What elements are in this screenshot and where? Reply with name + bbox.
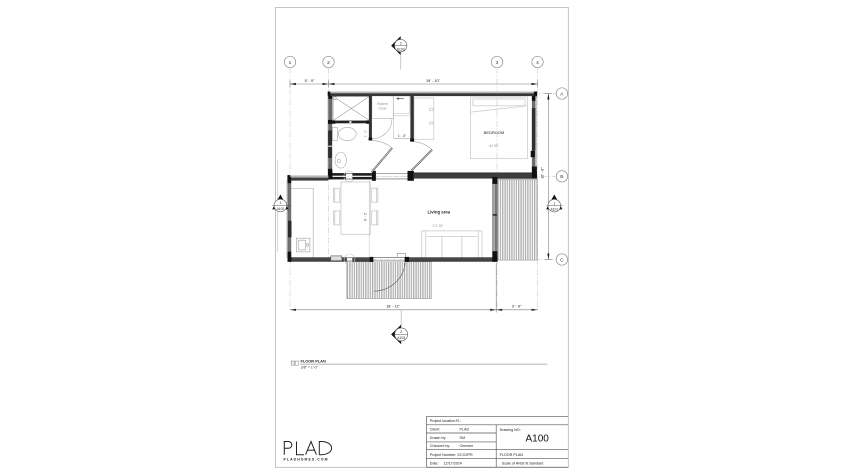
svg-text:1: 1 bbox=[279, 201, 281, 205]
svg-text:Scale of ANSI B standard: Scale of ANSI B standard bbox=[502, 462, 544, 466]
svg-text:19' - 10": 19' - 10" bbox=[426, 79, 441, 83]
svg-text:A102: A102 bbox=[277, 207, 285, 211]
svg-text:Dryer: Dryer bbox=[378, 106, 387, 110]
svg-text:84 SF: 84 SF bbox=[489, 144, 498, 148]
svg-text:BEDROOM: BEDROOM bbox=[484, 130, 505, 135]
svg-text:2' - 6": 2' - 6" bbox=[364, 130, 368, 137]
svg-text:2: 2 bbox=[400, 330, 402, 334]
svg-text:Project Number: ECO2PR: Project Number: ECO2PR bbox=[430, 453, 473, 457]
svg-text:Checker: Checker bbox=[460, 444, 475, 448]
svg-text:5' - 9": 5' - 9" bbox=[305, 79, 315, 83]
svg-text:8' - 2": 8' - 2" bbox=[363, 211, 367, 220]
svg-text:12/17/2024: 12/17/2024 bbox=[444, 462, 462, 466]
svg-text:Living area: Living area bbox=[427, 209, 450, 214]
svg-text:Project location:FL.: Project location:FL. bbox=[430, 419, 462, 423]
svg-text:2: 2 bbox=[327, 60, 330, 66]
svg-text:1' - 8": 1' - 8" bbox=[398, 134, 407, 138]
svg-text:A103: A103 bbox=[397, 336, 405, 340]
svg-text:FLOOR PLAN: FLOOR PLAN bbox=[301, 359, 326, 364]
svg-text:A100: A100 bbox=[526, 433, 550, 444]
svg-text:Client:: Client: bbox=[430, 428, 440, 432]
svg-text:A101: A101 bbox=[551, 207, 559, 211]
svg-text:4: 4 bbox=[536, 60, 539, 66]
svg-text:1: 1 bbox=[553, 201, 555, 205]
svg-text:Checked by:: Checked by: bbox=[430, 444, 451, 448]
svg-text:C: C bbox=[560, 257, 564, 263]
svg-text:PLAD: PLAD bbox=[460, 428, 470, 432]
svg-text:Drawn by:: Drawn by: bbox=[430, 436, 447, 440]
svg-text:SM: SM bbox=[460, 436, 466, 440]
svg-text:16' - 8": 16' - 8" bbox=[541, 167, 545, 179]
svg-text:2: 2 bbox=[400, 41, 402, 45]
svg-text:B: B bbox=[560, 174, 563, 180]
svg-text:Drawing NO:: Drawing NO: bbox=[500, 428, 521, 432]
svg-text:A103: A103 bbox=[397, 47, 405, 51]
svg-text:PLADHOMES.COM: PLADHOMES.COM bbox=[284, 458, 329, 462]
svg-text:1: 1 bbox=[289, 60, 292, 66]
svg-text:Date:: Date: bbox=[430, 462, 439, 466]
svg-text:3/8" = 1'-0": 3/8" = 1'-0" bbox=[301, 366, 319, 370]
svg-text:FLOOR PLAN: FLOOR PLAN bbox=[500, 453, 524, 457]
svg-text:3: 3 bbox=[496, 60, 499, 66]
svg-text:18' - 11": 18' - 11" bbox=[386, 305, 400, 309]
svg-text:172 SF: 172 SF bbox=[432, 224, 443, 228]
svg-text:3' - 9": 3' - 9" bbox=[512, 305, 522, 309]
